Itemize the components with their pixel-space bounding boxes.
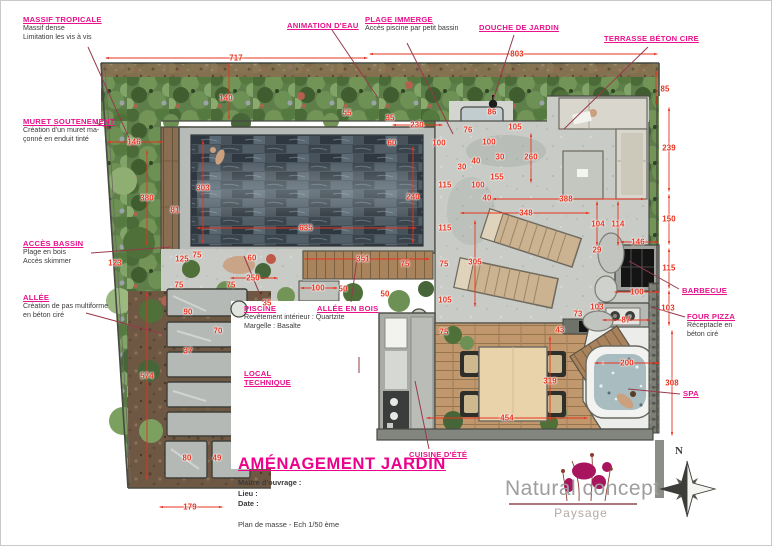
dimension-value: 146 xyxy=(631,238,645,247)
dimension-value: 230 xyxy=(410,121,424,130)
dimension-value: 73 xyxy=(573,310,582,319)
dimension-value: 100 xyxy=(482,138,496,147)
callout-title: ANIMATION D'EAU xyxy=(287,21,359,30)
callout-subtext: Revêtement intérieur : Quartzite xyxy=(244,313,345,322)
dimension-value: 35 xyxy=(262,299,271,308)
dimension-value: 30 xyxy=(457,163,466,172)
compass-rose-icon xyxy=(659,461,715,517)
dimension-value: 250 xyxy=(246,274,260,283)
dimension-value: 100 xyxy=(311,284,325,293)
callout-allee: ALLÉECréation de pas multiformeen béton … xyxy=(23,293,108,321)
dimension-value: 90 xyxy=(183,308,192,317)
callout-title: BARBECUE xyxy=(682,286,727,295)
callout-subtext: Massif dense xyxy=(23,24,102,33)
field-date: Date : xyxy=(238,499,446,510)
dimension-value: 105 xyxy=(438,296,452,305)
dimension-value: 81 xyxy=(170,206,179,215)
callout-subtext: Plage en bois xyxy=(23,248,83,257)
callout-allee-en-bois: ALLÉE EN BOIS xyxy=(317,304,378,313)
callout-title: SPA xyxy=(683,389,699,398)
book-on-table xyxy=(577,169,588,177)
callout-title: MASSIF TROPICALE xyxy=(23,15,102,24)
dimension-value: 454 xyxy=(500,414,514,423)
callout-massif-tropicale: MASSIF TROPICALEMassif denseLimitation l… xyxy=(23,15,102,43)
dimension-value: 351 xyxy=(356,255,370,264)
dimension-value: 60 xyxy=(247,254,256,263)
dimension-value: 85 xyxy=(660,85,669,94)
dimension-value: 200 xyxy=(620,359,634,368)
dimension-value: 574 xyxy=(140,372,154,381)
dimension-value: 380 xyxy=(140,194,154,203)
boulder-2 xyxy=(595,276,617,302)
dimension-value: 40 xyxy=(471,157,480,166)
dimension-value: 75 xyxy=(174,281,183,290)
dimension-value: 104 xyxy=(591,220,605,229)
dimension-value: 103 xyxy=(661,304,675,313)
dimension-value: 86 xyxy=(487,108,496,117)
dimension-value: 115 xyxy=(438,181,451,190)
dimension-value: 100 xyxy=(630,288,644,297)
dimension-value: 635 xyxy=(299,224,313,233)
dimension-value: 105 xyxy=(508,123,522,132)
dimension-value: 305 xyxy=(468,258,482,267)
dimension-value: 87 xyxy=(621,316,630,325)
callout-barbecue: BARBECUE xyxy=(682,286,727,295)
garden-plan-sheet: MASSIF TROPICALEMassif denseLimitation l… xyxy=(0,0,772,546)
callout-acces-bassin: ACCÈS BASSINPlage en boisAccès skimmer xyxy=(23,239,83,267)
logo-wordmark: Natural concept xyxy=(505,477,660,501)
dimension-value: 35 xyxy=(385,114,394,123)
callout-muret-soutenement: MURET SOUTENEMENTCréation d'un muret ma-… xyxy=(23,117,115,145)
callout-local-technique: LOCALTECHNIQUE xyxy=(244,369,291,387)
callout-subtext: Réceptacle en xyxy=(687,321,735,330)
dimension-value: 50 xyxy=(380,290,389,299)
callout-animation-eau: ANIMATION D'EAU xyxy=(287,21,359,30)
callout-title: ALLÉE xyxy=(23,293,108,302)
callout-title: FOUR PIZZA xyxy=(687,312,735,321)
callout-plage-immergee: PLAGE IMMERGEAccès piscine par petit bas… xyxy=(365,15,458,33)
callout-title: TERRASSE BÉTON CIRE xyxy=(604,34,699,43)
callout-subtext: Création d'un muret ma- xyxy=(23,126,115,135)
callout-title: ALLÉE EN BOIS xyxy=(317,304,378,313)
callout-title: LOCAL xyxy=(244,369,291,378)
dimension-value: 75 xyxy=(400,260,409,269)
dimension-value: 75 xyxy=(439,328,448,337)
callout-terrasse-beton-cire: TERRASSE BÉTON CIRE xyxy=(604,34,699,43)
dimension-value: 717 xyxy=(229,54,243,63)
dimension-value: 114 xyxy=(611,220,624,229)
callout-title: DOUCHE DE JARDIN xyxy=(479,23,559,32)
dimension-value: 308 xyxy=(665,379,679,388)
dimension-value: 30 xyxy=(495,153,504,162)
callout-subtext: en béton ciré xyxy=(23,311,108,320)
dimension-value: 49 xyxy=(212,454,221,463)
dimension-value: 75 xyxy=(439,260,448,269)
dimension-value: 40 xyxy=(482,194,491,203)
dimension-value: 319 xyxy=(543,377,557,386)
dimension-value: 100 xyxy=(432,139,446,148)
dimension-value: 115 xyxy=(662,264,675,273)
callout-subtext: Création de pas multiforme xyxy=(23,302,108,311)
callout-title: MURET SOUTENEMENT xyxy=(23,117,115,126)
dimension-value: 75 xyxy=(192,251,201,260)
dimension-value: 80 xyxy=(182,454,191,463)
callout-subtext: Accès piscine par petit bassin xyxy=(365,24,458,33)
dimension-value: 125 xyxy=(175,255,189,264)
logo-tagline: Paysage xyxy=(521,506,641,520)
callout-title: ACCÈS BASSIN xyxy=(23,239,83,248)
dimension-value: 240 xyxy=(406,193,420,202)
outdoor-kitchen xyxy=(379,313,435,439)
boulder-1 xyxy=(598,233,624,273)
callout-subtext: Margelle : Basalte xyxy=(244,322,345,331)
scale-note: Plan de masse - Ech 1/50 ème xyxy=(238,520,446,529)
callout-subtext: Limitation les vis à vis xyxy=(23,33,102,42)
dimension-value: 260 xyxy=(524,153,538,162)
field-location: Lieu : xyxy=(238,489,446,500)
callout-title: TECHNIQUE xyxy=(244,378,291,387)
dimension-value: 150 xyxy=(662,215,676,224)
dimension-value: 55 xyxy=(342,109,351,118)
dimension-value: 155 xyxy=(490,173,504,182)
field-client: Maître d'ouvrage : xyxy=(238,478,446,489)
callout-subtext: Accès skimmer xyxy=(23,257,83,266)
dimension-value: 140 xyxy=(219,94,233,103)
dimension-value: 76 xyxy=(463,126,472,135)
dimension-value: 50 xyxy=(338,285,347,294)
dimension-value: 803 xyxy=(510,50,524,59)
dimension-value: 75 xyxy=(226,281,235,290)
dimension-value: 179 xyxy=(183,503,197,512)
dimension-value: 388 xyxy=(559,195,573,204)
callout-spa: SPA xyxy=(683,389,699,398)
dimension-value: 115 xyxy=(438,224,451,233)
dimension-value: 60 xyxy=(387,139,396,148)
dimension-value: 37 xyxy=(183,347,192,356)
sheet-title: AMÉNAGEMENT JARDIN xyxy=(238,455,446,474)
dimension-value: 146 xyxy=(127,138,141,147)
callout-title: PLAGE IMMERGE xyxy=(365,15,458,24)
dimension-value: 123 xyxy=(108,259,122,268)
callout-subtext: çonné en enduit tinté xyxy=(23,135,115,144)
dimension-value: 348 xyxy=(519,209,533,218)
callout-four-pizza: FOUR PIZZARéceptacle enbéton ciré xyxy=(687,312,735,340)
dimension-value: 100 xyxy=(471,181,485,190)
title-block: AMÉNAGEMENT JARDIN Maître d'ouvrage : Li… xyxy=(238,455,446,529)
dimension-value: 303 xyxy=(196,184,210,193)
dimension-value: 70 xyxy=(213,327,222,336)
dimension-value: 43 xyxy=(555,326,564,335)
compass-north-label: N xyxy=(675,445,683,457)
callout-douche-de-jardin: DOUCHE DE JARDIN xyxy=(479,23,559,32)
dimension-value: 29 xyxy=(592,246,601,255)
dimension-value: 239 xyxy=(662,144,676,153)
callout-subtext: béton ciré xyxy=(687,330,735,339)
kitchen-sink-unit xyxy=(383,391,409,431)
kitchen-fridge xyxy=(385,318,407,348)
dimension-value: 103 xyxy=(590,303,604,312)
